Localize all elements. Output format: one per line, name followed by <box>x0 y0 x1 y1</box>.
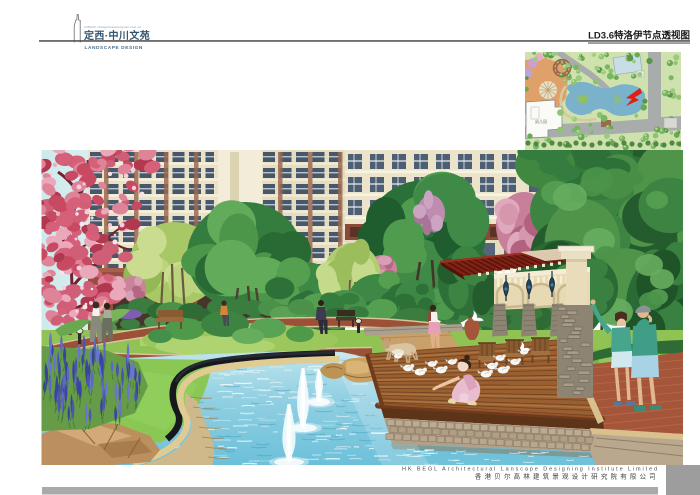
svg-text:DINGXI·zhongchuanwenyuan·com·c: DINGXI·zhongchuanwenyuan·com·cn <box>85 25 142 29</box>
svg-text:LANDSCAPE DESIGN: LANDSCAPE DESIGN <box>85 45 143 51</box>
svg-text:LD3.6特洛伊节点透视图: LD3.6特洛伊节点透视图 <box>588 30 690 42</box>
svg-text:定西·中川文苑: 定西·中川文苑 <box>84 29 150 42</box>
svg-text:HK BEGL Architectural Lanscape: HK BEGL Architectural Lanscape Designing… <box>402 467 659 473</box>
svg-text:香港贝尔高林建筑景观设计研究院有限公司: 香港贝尔高林建筑景观设计研究院有限公司 <box>475 472 659 481</box>
svg-text:幼儿园: 幼儿园 <box>535 118 547 124</box>
